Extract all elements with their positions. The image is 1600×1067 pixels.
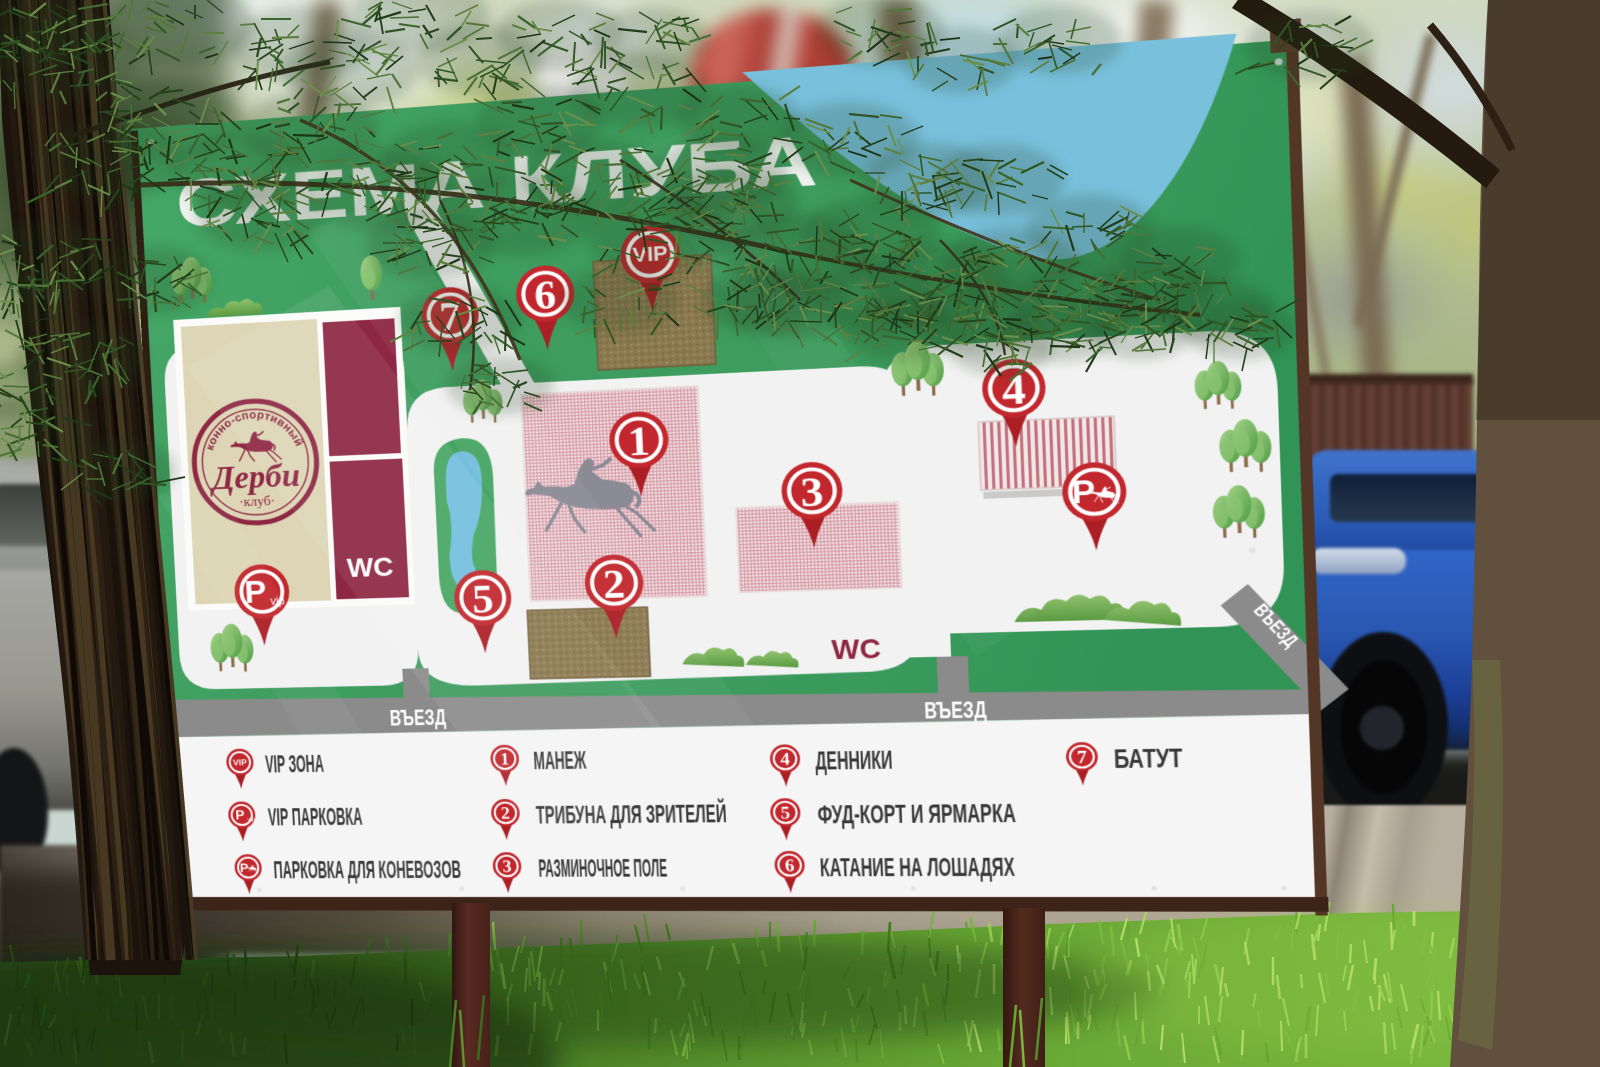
svg-text:ВЪЕЗД: ВЪЕЗД [389,706,446,730]
svg-text:ДЕННИКИ: ДЕННИКИ [815,746,893,775]
svg-text:5: 5 [780,803,790,823]
svg-text:4: 4 [780,749,791,769]
svg-text:6: 6 [784,855,795,875]
svg-text:3: 3 [502,857,512,876]
svg-text:РАЗМИНОЧНОЕ ПОЛЕ: РАЗМИНОЧНОЕ ПОЛЕ [538,855,668,883]
svg-text:WC: WC [831,633,882,666]
svg-text:2: 2 [500,803,510,822]
svg-text:7: 7 [1077,747,1088,768]
svg-text:ФУД-КОРТ И ЯРМАРКА: ФУД-КОРТ И ЯРМАРКА [817,800,1016,830]
svg-text:ВЪЕЗД: ВЪЕЗД [924,698,987,724]
svg-text:БАТУТ: БАТУТ [1113,744,1183,774]
svg-text:КАТАНИЕ НА ЛОШАДЯХ: КАТАНИЕ НА ЛОШАДЯХ [819,853,1015,882]
